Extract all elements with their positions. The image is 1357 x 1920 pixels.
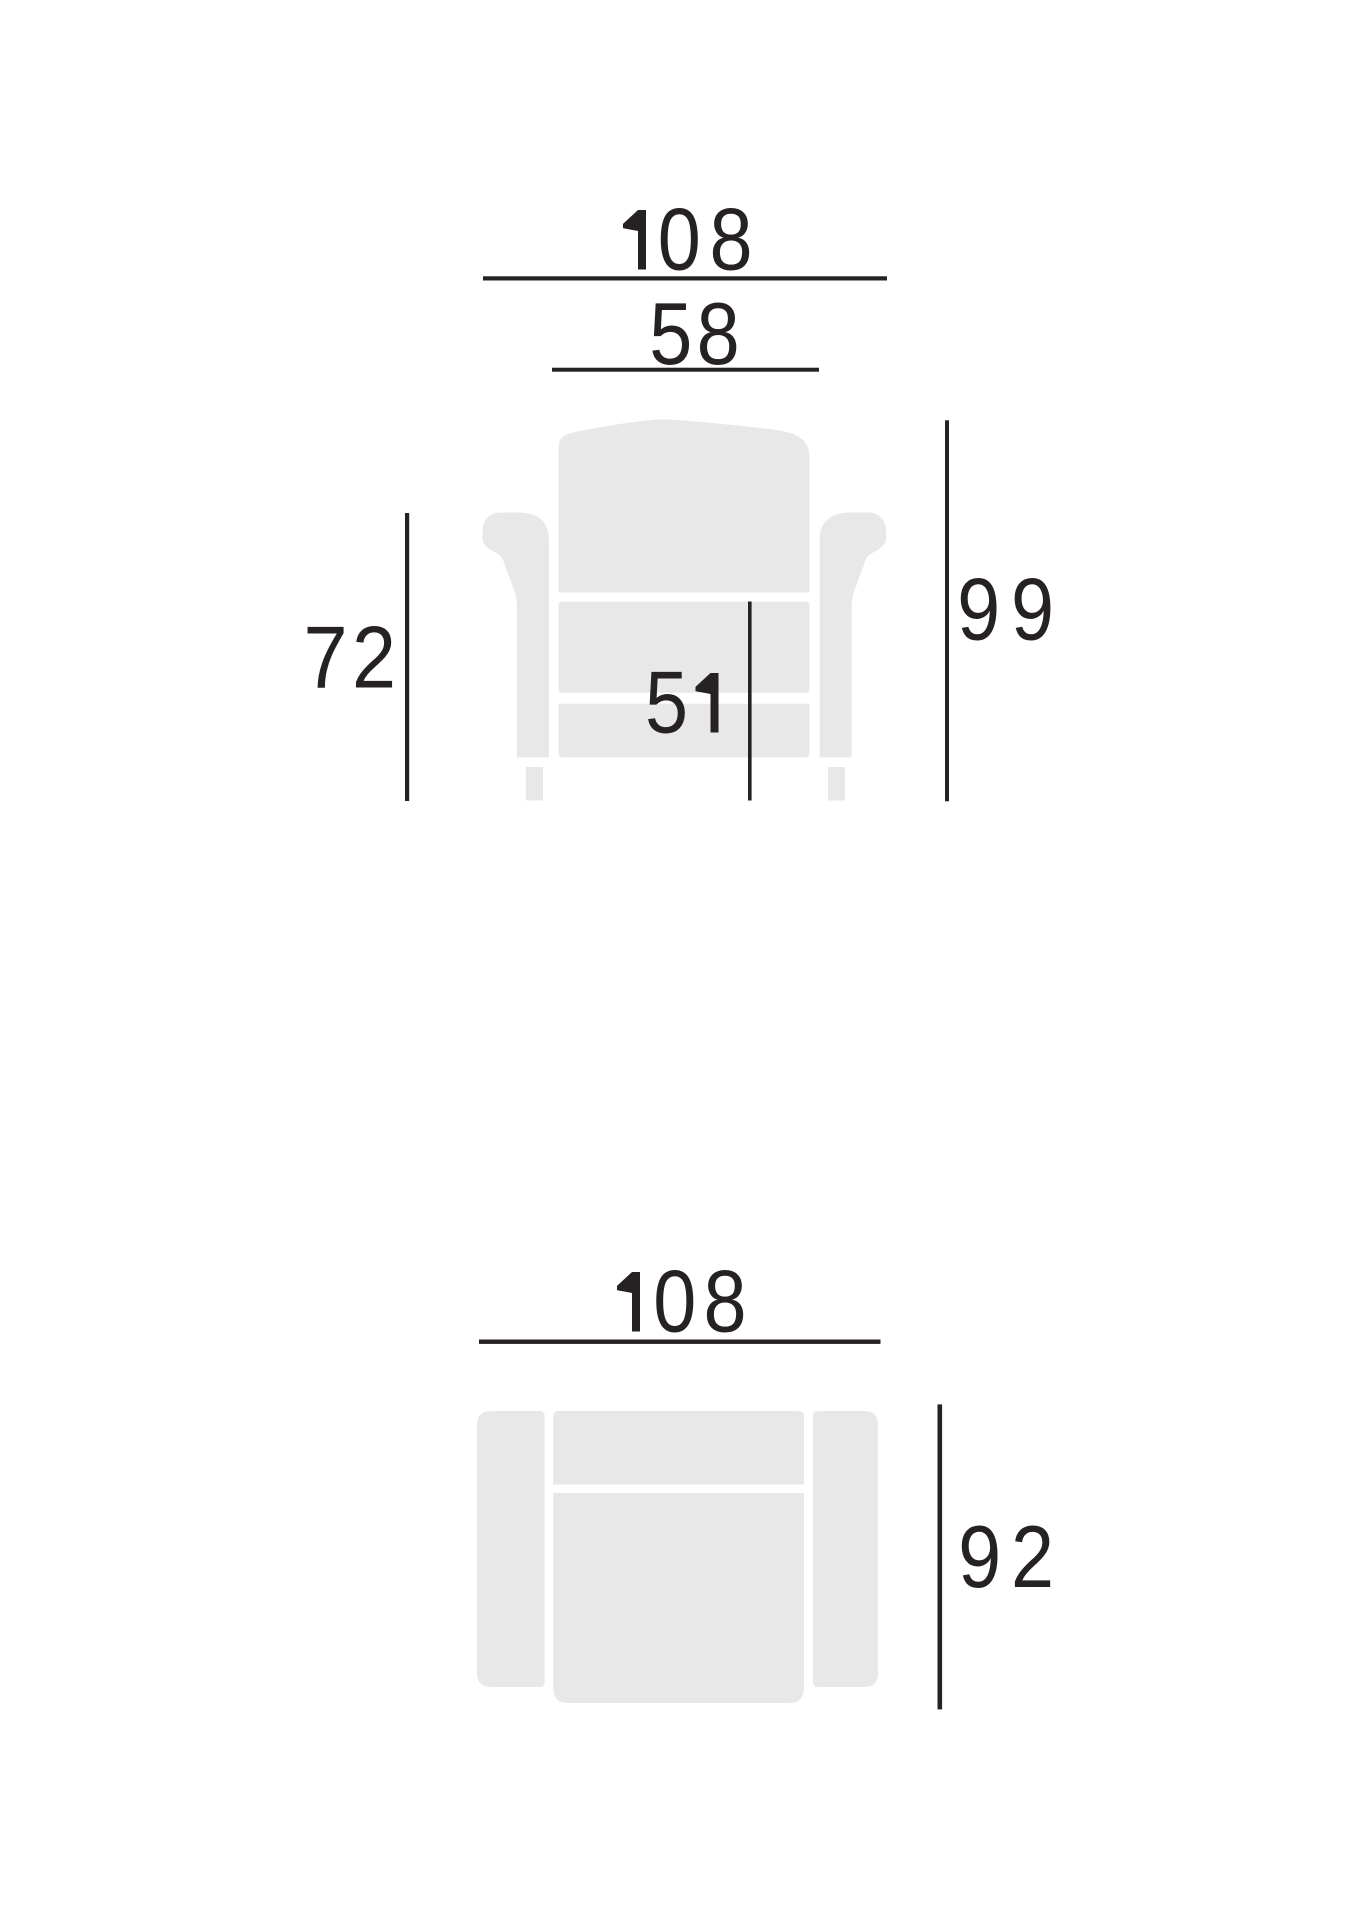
svg-text:9: 9: [957, 560, 1000, 659]
svg-text:9: 9: [958, 1507, 1001, 1606]
svg-text:2: 2: [1011, 1507, 1054, 1606]
svg-text:7: 7: [303, 608, 347, 707]
svg-text:8: 8: [703, 1252, 746, 1351]
svg-text:8: 8: [709, 190, 752, 289]
svg-text:2: 2: [352, 608, 396, 707]
svg-text:0: 0: [653, 1252, 696, 1351]
svg-text:9: 9: [1011, 560, 1054, 659]
svg-text:0: 0: [658, 190, 701, 289]
svg-text:5: 5: [645, 653, 688, 752]
